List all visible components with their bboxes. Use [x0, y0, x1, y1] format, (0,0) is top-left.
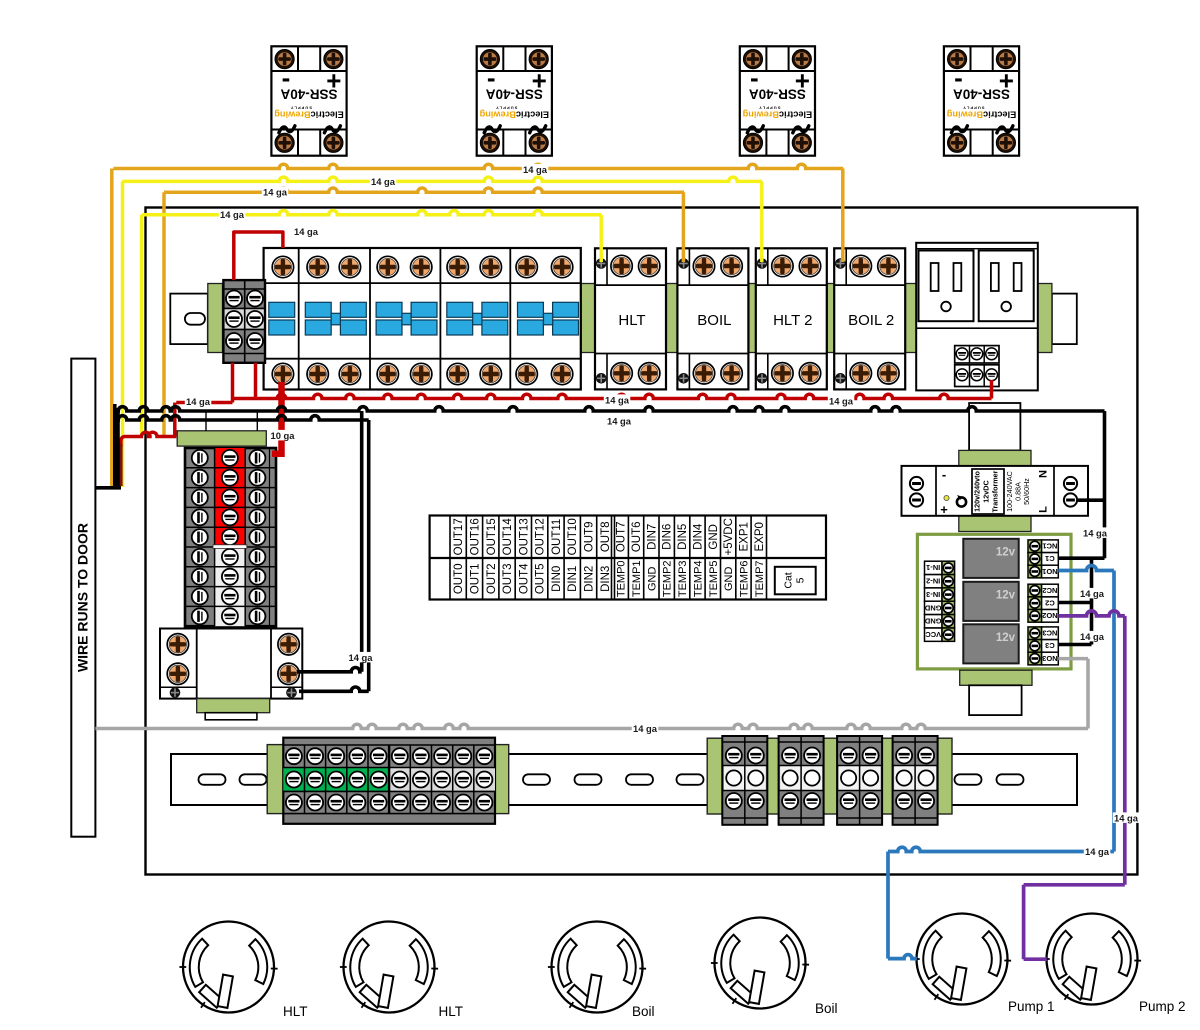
svg-text:14 ga: 14 ga: [349, 652, 374, 663]
svg-text:TEMP5: TEMP5: [708, 560, 720, 597]
svg-text:GND: GND: [723, 567, 735, 592]
svg-text:NO3: NO3: [1042, 654, 1057, 663]
svg-text:-: -: [942, 467, 946, 482]
svg-text:NO1: NO1: [1042, 567, 1057, 576]
svg-text:VCC: VCC: [925, 630, 941, 639]
svg-text:OUT4: OUT4: [518, 563, 530, 594]
svg-text:DIN2: DIN2: [584, 566, 596, 592]
svg-text:14 ga: 14 ga: [220, 209, 245, 220]
svg-text:5: 5: [795, 577, 807, 583]
svg-text:OUT5: OUT5: [535, 563, 547, 594]
svg-text:+: +: [940, 502, 948, 517]
svg-text:SSR-40A: SSR-40A: [486, 87, 543, 102]
svg-text:+5VDC: +5VDC: [723, 518, 735, 555]
svg-text:GND: GND: [924, 617, 941, 626]
svg-text:EXP1: EXP1: [739, 522, 751, 551]
svg-text:OUT8: OUT8: [600, 521, 612, 552]
svg-text:ElectricBrewing: ElectricBrewing: [743, 110, 812, 120]
svg-text:GND: GND: [646, 567, 658, 592]
svg-text:ElectricBrewing: ElectricBrewing: [480, 110, 549, 120]
svg-text:SSR-40A: SSR-40A: [953, 87, 1010, 102]
svg-text:14 ga: 14 ga: [1080, 588, 1105, 599]
svg-text:TEMP4: TEMP4: [692, 560, 704, 597]
svg-text:L: L: [1038, 506, 1050, 513]
svg-text:14 ga: 14 ga: [371, 176, 396, 187]
svg-text:DIN5: DIN5: [677, 524, 689, 550]
svg-text:14 ga: 14 ga: [1114, 812, 1139, 823]
svg-text:BOIL: BOIL: [697, 312, 731, 329]
svg-text:OUT17: OUT17: [453, 518, 465, 555]
svg-text:GND: GND: [708, 524, 720, 550]
svg-text:14 ga: 14 ga: [523, 164, 548, 175]
svg-text:OUT14: OUT14: [502, 518, 514, 556]
svg-text:NC1: NC1: [1042, 542, 1057, 551]
svg-text:TEMP3: TEMP3: [677, 560, 689, 597]
svg-text:12v: 12v: [996, 632, 1016, 644]
svg-text:OUT7: OUT7: [616, 521, 628, 552]
svg-text:ElectricBrewing: ElectricBrewing: [274, 110, 343, 120]
svg-text:SSR-40A: SSR-40A: [280, 87, 337, 102]
svg-text:SSR-40A: SSR-40A: [749, 87, 806, 102]
svg-text:Pump 1: Pump 1: [1008, 999, 1055, 1014]
svg-text:DIN7: DIN7: [646, 524, 658, 550]
svg-text:OUT2: OUT2: [486, 563, 498, 594]
svg-text:NO2: NO2: [1042, 611, 1057, 620]
svg-text:14 ga: 14 ga: [186, 396, 211, 407]
svg-text:14 ga: 14 ga: [607, 415, 632, 426]
svg-text:Pump 2: Pump 2: [1139, 999, 1186, 1014]
svg-text:IN-3: IN-3: [926, 590, 940, 599]
svg-text:IN-2: IN-2: [926, 577, 940, 586]
svg-text:OUT6: OUT6: [631, 521, 643, 552]
svg-text:OUT15: OUT15: [486, 518, 498, 555]
svg-text:DIN1: DIN1: [567, 566, 579, 592]
svg-text:IN-1: IN-1: [926, 563, 940, 572]
svg-text:ElectricBrewing: ElectricBrewing: [947, 110, 1016, 120]
svg-text:HLT 2: HLT 2: [773, 312, 812, 329]
svg-text:50/60Hz: 50/60Hz: [1022, 478, 1031, 505]
svg-text:OUT13: OUT13: [518, 518, 530, 555]
svg-text:12v: 12v: [996, 589, 1016, 601]
svg-text:OUT9: OUT9: [584, 521, 596, 552]
svg-text:Boil: Boil: [632, 1004, 655, 1019]
svg-text:NC2: NC2: [1042, 586, 1057, 595]
svg-text:OUT1: OUT1: [469, 563, 481, 594]
svg-text:DIN4: DIN4: [692, 523, 704, 550]
svg-text:OUT10: OUT10: [567, 518, 579, 555]
svg-text:TEMP1: TEMP1: [631, 560, 643, 597]
svg-text:NC3: NC3: [1042, 629, 1057, 638]
svg-text:TEMP7: TEMP7: [754, 560, 766, 597]
svg-text:DIN6: DIN6: [662, 524, 674, 550]
svg-text:C3: C3: [1045, 641, 1055, 650]
svg-text:HLT: HLT: [618, 312, 645, 329]
svg-text:Transformer: Transformer: [991, 470, 1000, 512]
svg-text:WIRE RUNS TO DOOR: WIRE RUNS TO DOOR: [75, 523, 91, 672]
svg-text:OUT3: OUT3: [502, 563, 514, 594]
svg-text:14 ga: 14 ga: [829, 395, 854, 406]
svg-text:DIN3: DIN3: [600, 566, 612, 592]
svg-text:OUT0: OUT0: [453, 563, 465, 594]
svg-text:120v/240vto: 120v/240vto: [973, 471, 982, 512]
svg-text:C1: C1: [1045, 554, 1055, 563]
svg-text:14 ga: 14 ga: [1083, 527, 1108, 538]
svg-text:12vDC: 12vDC: [982, 480, 991, 502]
svg-text:DIN0: DIN0: [551, 566, 563, 592]
svg-text:TEMP0: TEMP0: [616, 560, 628, 597]
svg-text:14 ga: 14 ga: [605, 394, 630, 405]
svg-text:C2: C2: [1045, 599, 1055, 608]
svg-text:TEMP2: TEMP2: [662, 560, 674, 597]
svg-text:HLT: HLT: [439, 1004, 464, 1019]
svg-text:10 ga: 10 ga: [271, 430, 296, 441]
svg-text:GND: GND: [924, 603, 941, 612]
svg-text:14 ga: 14 ga: [1085, 846, 1110, 857]
svg-text:Cat: Cat: [783, 572, 795, 588]
svg-text:14 ga: 14 ga: [263, 187, 288, 198]
svg-text:OUT12: OUT12: [535, 518, 547, 555]
svg-text:14 ga: 14 ga: [294, 226, 319, 237]
svg-text:N: N: [1038, 470, 1050, 478]
svg-text:OUT16: OUT16: [469, 518, 481, 555]
svg-text:BOIL 2: BOIL 2: [848, 312, 894, 329]
svg-text:EXP0: EXP0: [754, 522, 766, 551]
svg-text:OUT11: OUT11: [551, 519, 563, 555]
svg-text:HLT: HLT: [283, 1004, 308, 1019]
svg-text:14 ga: 14 ga: [1080, 631, 1105, 642]
svg-text:TEMP6: TEMP6: [739, 560, 751, 597]
svg-text:12v: 12v: [996, 546, 1016, 558]
svg-text:Boil: Boil: [815, 1001, 838, 1016]
svg-text:14 ga: 14 ga: [633, 723, 658, 734]
